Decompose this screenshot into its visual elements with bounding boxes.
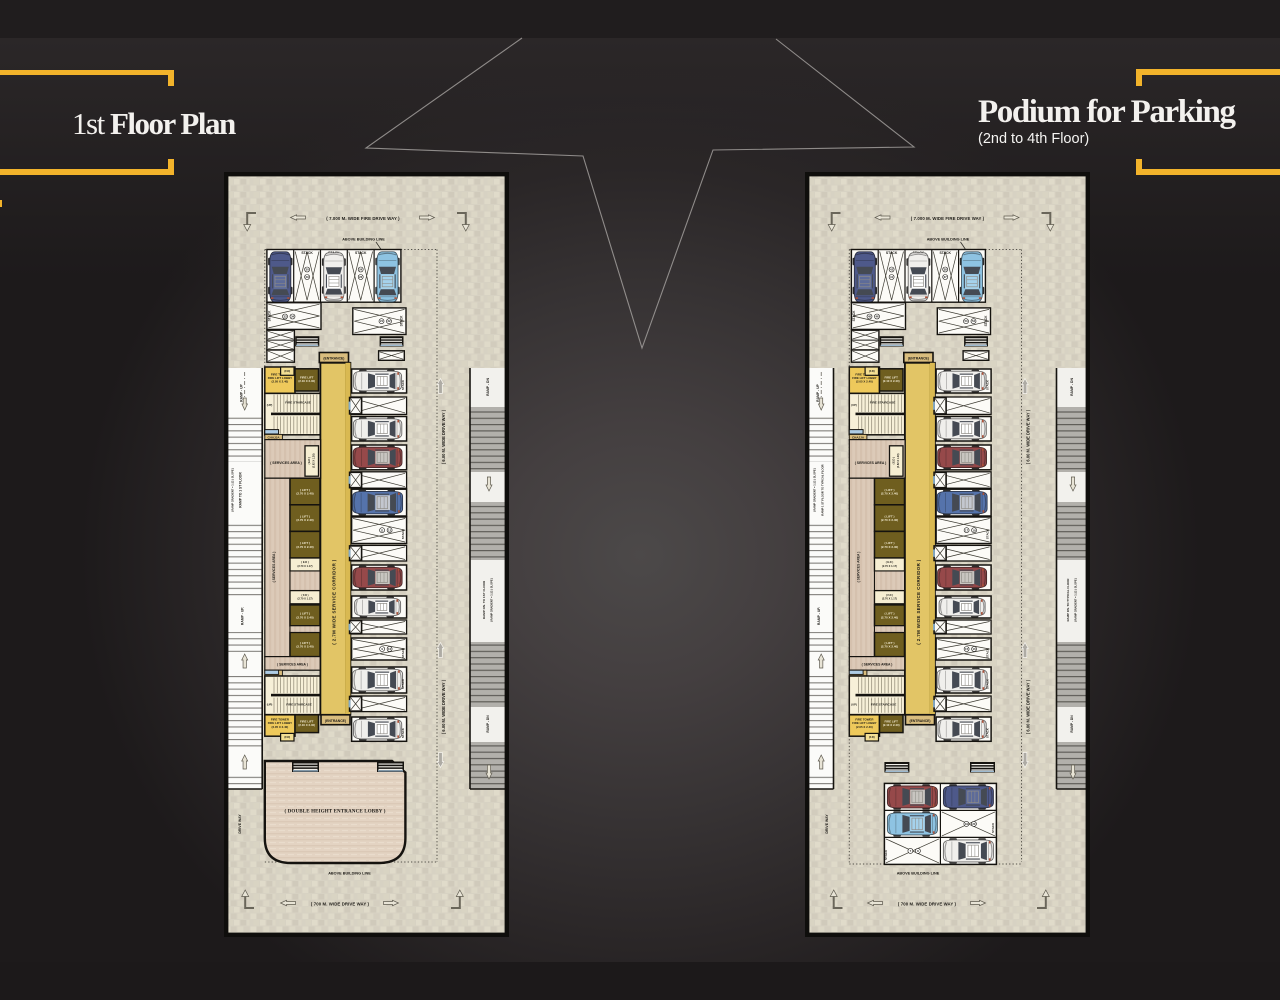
svg-text:( 7.000 M. WIDE FIRE DRIVE WAY: ( 7.000 M. WIDE FIRE DRIVE WAY )	[326, 216, 400, 221]
svg-text:STACK: STACK	[401, 678, 405, 689]
svg-text:( E.D ): ( E.D )	[308, 457, 311, 464]
svg-text:(2.05 X 2.40): (2.05 X 2.40)	[272, 725, 289, 729]
svg-text:( RAMP GRADIENT = 1:12 ( SLOPE: ( RAMP GRADIENT = 1:12 ( SLOPE )	[813, 468, 817, 512]
svg-text:RAMP - UP.: RAMP - UP.	[241, 607, 245, 625]
svg-text:42: 42	[890, 268, 894, 272]
svg-text:( F.D ): ( F.D )	[301, 593, 308, 597]
svg-text:(2.70 X 2.40): (2.70 X 2.40)	[881, 645, 898, 649]
svg-text:(2.70 X 1.17): (2.70 X 1.17)	[882, 564, 897, 568]
svg-text:STACK: STACK	[886, 251, 898, 255]
svg-text:(F.D): (F.D)	[869, 369, 875, 373]
svg-text:FIRE STAIRCASE: FIRE STAIRCASE	[286, 703, 312, 707]
svg-text:(2.70 X 1.17): (2.70 X 1.17)	[298, 564, 313, 568]
svg-text:54: 54	[972, 319, 976, 323]
svg-text:(ENTRANCE): (ENTRANCE)	[909, 719, 930, 723]
svg-text:(3.82 X 1.20): (3.82 X 1.20)	[313, 453, 316, 468]
svg-text:15: 15	[965, 647, 969, 651]
svg-text:( 7.000 M. WIDE FIRE DRIVE WAY: ( 7.000 M. WIDE FIRE DRIVE WAY )	[911, 216, 985, 221]
svg-text:37: 37	[944, 275, 948, 279]
svg-text:( SERVICES AREA ): ( SERVICES AREA )	[855, 461, 887, 465]
svg-text:53: 53	[964, 319, 968, 323]
svg-text:19: 19	[965, 822, 969, 826]
svg-text:( SERVICES AREA ): ( SERVICES AREA )	[862, 663, 893, 667]
svg-text:( SERVICES AREA ): ( SERVICES AREA )	[270, 461, 302, 465]
svg-text:STACK: STACK	[986, 678, 990, 689]
svg-text:17: 17	[965, 528, 969, 532]
svg-text:34: 34	[291, 315, 295, 319]
svg-text:( 6.00 M. WIDE DRIVE WAY ): ( 6.00 M. WIDE DRIVE WAY )	[1026, 409, 1031, 464]
svg-text:FIRE STAIRCASE: FIRE STAIRCASE	[285, 401, 311, 405]
svg-text:RAMP 1 ST FLOOR TO TYPICAL FLO: RAMP 1 ST FLOOR TO TYPICAL FLOOR	[821, 464, 825, 515]
svg-text:( DOUBLE HEIGHT ENTRANCE L: ( DOUBLE HEIGHT ENTRANCE LOBBY )	[284, 810, 385, 815]
svg-text:CHAJJA: CHAJJA	[267, 435, 280, 439]
svg-text:( RAMP GRADIENT = 1:12 ( SLOPE: ( RAMP GRADIENT = 1:12 ( SLOPE )	[1074, 578, 1078, 622]
svg-text:22: 22	[387, 319, 391, 323]
svg-text:( 6.00 M. WIDE DRIVE WAY ): ( 6.00 M. WIDE DRIVE WAY )	[441, 679, 446, 734]
svg-text:( F.D ): ( F.D )	[886, 593, 893, 597]
svg-text:DRIVE WAY: DRIVE WAY	[238, 814, 242, 834]
svg-text:RAMP TO 1 ST FLOOR: RAMP TO 1 ST FLOOR	[239, 472, 243, 508]
svg-text:( SERVICES AREA ): ( SERVICES AREA )	[272, 552, 276, 583]
svg-text:16: 16	[973, 647, 977, 651]
svg-text:18: 18	[973, 528, 977, 532]
svg-text:STACK: STACK	[401, 647, 405, 658]
svg-text:RAMP - DN: RAMP - DN	[1070, 378, 1074, 396]
svg-text:STACK: STACK	[991, 822, 995, 833]
svg-text:FIRE STAIRCASE: FIRE STAIRCASE	[871, 703, 897, 707]
svg-text:RAMP - UP.: RAMP - UP.	[817, 607, 821, 625]
svg-text:( E.D ): ( E.D )	[893, 457, 896, 464]
svg-text:(UP): (UP)	[267, 703, 273, 707]
svg-text:( 6.00 M. WIDE DRIVE WAY ): ( 6.00 M. WIDE DRIVE WAY )	[441, 409, 446, 464]
svg-text:(2.05 X 2.40): (2.05 X 2.40)	[272, 380, 289, 384]
svg-text:( 2.7M WIDE SERVICE CORRIDOR ): ( 2.7M WIDE SERVICE CORRIDOR )	[332, 559, 337, 644]
svg-text:20: 20	[972, 822, 976, 826]
svg-text:29: 29	[306, 275, 310, 279]
svg-text:RAMP - DN: RAMP - DN	[486, 378, 490, 396]
svg-text:STACK: STACK	[400, 315, 404, 326]
svg-text:RAMP - DN: RAMP - DN	[1070, 715, 1074, 733]
svg-text:↑: ↑	[871, 699, 872, 702]
svg-text:( E.D ): ( E.D )	[301, 560, 309, 564]
svg-text:(2.70 X 2.40): (2.70 X 2.40)	[296, 645, 313, 649]
svg-text:STACK: STACK	[939, 251, 951, 255]
svg-text:ABOVE BUILDING LINE: ABOVE BUILDING LINE	[328, 872, 371, 876]
svg-text:STACK: STACK	[986, 379, 990, 390]
svg-text:21: 21	[380, 319, 384, 323]
svg-text:(2.70 X 2.40): (2.70 X 2.40)	[296, 518, 313, 522]
svg-text:11: 11	[381, 528, 384, 532]
svg-text:(2.70 X 2.40): (2.70 X 2.40)	[881, 615, 898, 619]
svg-text:(3.82 X 1.20): (3.82 X 1.20)	[897, 453, 900, 468]
svg-text:( 2.7M WIDE SERVICE CORRIDOR ): ( 2.7M WIDE SERVICE CORRIDOR )	[916, 559, 921, 644]
svg-text:46: 46	[875, 315, 879, 319]
svg-text:( E.D ): ( E.D )	[886, 560, 894, 564]
svg-text:ABOVE BUILDING LINE: ABOVE BUILDING LINE	[897, 872, 940, 876]
svg-text:STACK: STACK	[268, 310, 272, 321]
svg-text:( RAMP GRADIENT = 1:12 ( SLOPE: ( RAMP GRADIENT = 1:12 ( SLOPE )	[490, 578, 494, 622]
svg-text:( 6.00 M. WIDE DRIVE WAY ): ( 6.00 M. WIDE DRIVE WAY )	[1026, 679, 1031, 734]
svg-text:STACK: STACK	[301, 251, 313, 255]
svg-text:(2.10 X 2.40): (2.10 X 2.40)	[883, 723, 900, 727]
svg-text:CHAJJA: CHAJJA	[852, 435, 865, 439]
svg-text:RAMP DN. TO 1ST FLOOR: RAMP DN. TO 1ST FLOOR	[482, 580, 486, 619]
svg-text:STACK: STACK	[884, 849, 888, 860]
svg-text:(ENTRANCE): (ENTRANCE)	[323, 357, 344, 361]
svg-text:41: 41	[890, 275, 894, 279]
svg-text:( 700 M. WIDE DRIVE WAY ): ( 700 M. WIDE DRIVE WAY )	[898, 902, 957, 907]
svg-text:STACK: STACK	[986, 727, 990, 738]
svg-text:12: 12	[388, 528, 392, 532]
svg-text:30: 30	[306, 268, 310, 272]
svg-text:33: 33	[283, 315, 287, 319]
svg-text:ABOVE BUILDING LINE: ABOVE BUILDING LINE	[927, 238, 970, 242]
svg-text:(ENTRANCE): (ENTRANCE)	[908, 357, 929, 361]
svg-text:(UP): (UP)	[267, 403, 273, 407]
svg-text:DRIVE WAY: DRIVE WAY	[825, 814, 829, 834]
svg-text:(2.05 X 2.40): (2.05 X 2.40)	[856, 725, 873, 729]
svg-text:( 700 M. WIDE DRIVE WAY ): ( 700 M. WIDE DRIVE WAY )	[311, 902, 370, 907]
svg-text:STACK: STACK	[986, 647, 990, 658]
svg-text:(2.10 X 2.40): (2.10 X 2.40)	[298, 723, 315, 727]
svg-text:(2.10 X 2.40): (2.10 X 2.40)	[298, 379, 315, 383]
svg-text:(2.70 X 1.17): (2.70 X 1.17)	[298, 596, 313, 600]
svg-text:STACK: STACK	[984, 315, 988, 326]
svg-text:(2.70 X 2.40): (2.70 X 2.40)	[296, 615, 313, 619]
svg-text:STACK: STACK	[852, 310, 856, 321]
svg-text:(F.D): (F.D)	[284, 735, 290, 739]
svg-text:STACK: STACK	[401, 727, 405, 738]
svg-text:(2.70 X 2.40): (2.70 X 2.40)	[881, 518, 898, 522]
svg-text:( SERVICES AREA ): ( SERVICES AREA )	[277, 663, 308, 667]
svg-text:( SERVICES AREA ): ( SERVICES AREA )	[857, 552, 861, 583]
svg-text:24: 24	[359, 268, 363, 272]
svg-text:(2.10 X 2.40): (2.10 X 2.40)	[883, 379, 900, 383]
svg-text:STACK: STACK	[986, 528, 990, 539]
svg-text:(2.70 X 2.40): (2.70 X 2.40)	[296, 545, 313, 549]
svg-text:(UP): (UP)	[851, 403, 857, 407]
svg-text:(F.D): (F.D)	[284, 369, 290, 373]
svg-text:FIRE STAIRCASE: FIRE STAIRCASE	[870, 401, 896, 405]
svg-text:(2.70 X 2.40): (2.70 X 2.40)	[881, 492, 898, 496]
svg-text:(2.70 X 2.40): (2.70 X 2.40)	[881, 545, 898, 549]
svg-text:RAMP - DN: RAMP - DN	[486, 715, 490, 733]
svg-text:ABOVE BUILDING LINE: ABOVE BUILDING LINE	[342, 238, 385, 242]
svg-text:STACK: STACK	[401, 528, 405, 539]
svg-text:(F.D): (F.D)	[869, 735, 875, 739]
svg-text:(2.05 X 2.40): (2.05 X 2.40)	[856, 380, 873, 384]
svg-text:23: 23	[359, 275, 363, 279]
svg-text:10: 10	[388, 647, 392, 651]
svg-text:38: 38	[944, 268, 948, 272]
svg-text:STACK: STACK	[401, 379, 405, 390]
svg-text:RAMP DN. TO TYPICAL FLOOR: RAMP DN. TO TYPICAL FLOOR	[1066, 578, 1070, 622]
svg-text:STACK: STACK	[355, 251, 367, 255]
svg-text:(UP): (UP)	[851, 703, 857, 707]
svg-text:(2.70 X 2.40): (2.70 X 2.40)	[296, 492, 313, 496]
svg-text:(2.70 X 1.17): (2.70 X 1.17)	[882, 596, 897, 600]
svg-text:(ENTRANCE): (ENTRANCE)	[325, 719, 346, 723]
svg-text:↑: ↑	[286, 699, 287, 702]
svg-text:( RAMP GRADIENT = 1:12 ( SLOPE: ( RAMP GRADIENT = 1:12 ( SLOPE )	[231, 468, 235, 512]
svg-text:45: 45	[868, 315, 872, 319]
